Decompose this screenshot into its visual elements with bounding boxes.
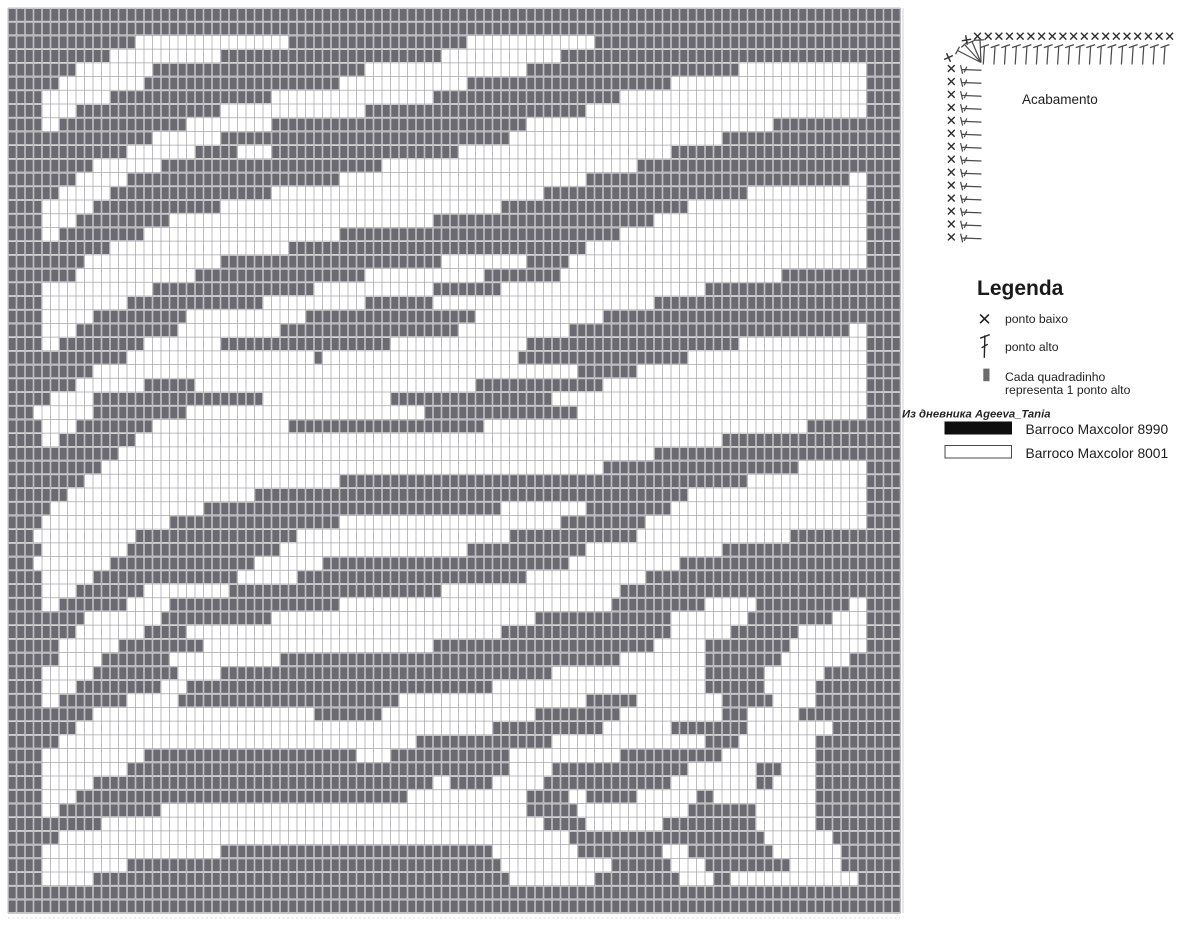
svg-text:ponto baixo: ponto baixo [1005, 312, 1068, 326]
svg-text:Acabamento: Acabamento [1022, 92, 1098, 107]
svg-text:Из дневника Ageeva_Tania: Из дневника Ageeva_Tania [902, 409, 1051, 421]
svg-text:ponto alto: ponto alto [1005, 340, 1059, 354]
svg-text:Barroco Maxcolor 8001: Barroco Maxcolor 8001 [1026, 446, 1169, 461]
svg-text:Legenda: Legenda [977, 277, 1064, 300]
svg-text:Cada quadradinho: Cada quadradinho [1005, 370, 1106, 384]
svg-text:Barroco Maxcolor 8990: Barroco Maxcolor 8990 [1026, 422, 1169, 437]
svg-text:representa 1 ponto alto: representa 1 ponto alto [1005, 383, 1131, 397]
